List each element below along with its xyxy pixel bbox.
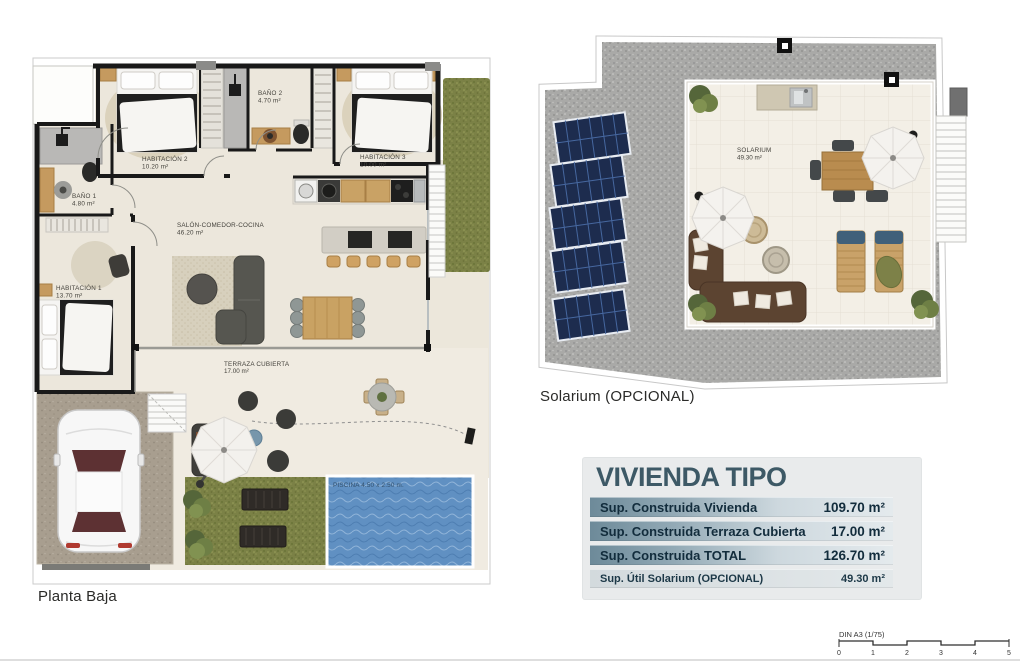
scale-label: DIN A3 (1/75) — [839, 630, 885, 639]
summary-title: VIVIENDA TIPO — [596, 462, 787, 493]
room-label-bano2: BAÑO 2 — [258, 88, 283, 97]
ottoman — [267, 450, 289, 472]
stove — [391, 180, 413, 202]
floor-plan-planta-baja: PISCINA 4.50 x 2.50 m. — [33, 58, 490, 584]
room-label-habitacion1: HABITACIÓN 1 — [56, 283, 102, 292]
sheet-bottom-edge — [0, 659, 1020, 661]
summary-row-label: Sup. Construida TOTAL — [600, 548, 746, 563]
summary-row-label: Sup. Construida Vivienda — [600, 500, 757, 515]
scale-ticks: 0 1 2 3 4 5 — [837, 650, 1011, 657]
summary-panel: VIVIENDA TIPO Sup. Construida Vivienda 1… — [583, 458, 921, 599]
room-area-bano1: 4.80 m² — [72, 201, 95, 208]
summary-row-label: Sup. Útil Solarium (OPCIONAL) — [600, 573, 763, 585]
sun-lounger — [240, 526, 286, 547]
summary-row-value: 17.00 m² — [831, 524, 885, 539]
ottoman — [238, 391, 258, 411]
closet — [313, 68, 333, 148]
dining-table — [291, 297, 365, 339]
summary-row: Sup. Construida TOTAL 126.70 m² — [590, 545, 893, 565]
bedroom-3 — [337, 68, 442, 157]
sun-lounger — [242, 489, 288, 510]
hedge — [443, 78, 490, 272]
room-area-terraza: 17.00 m² — [224, 368, 249, 375]
room-label-habitacion3: HABITACIÓN 3 — [360, 152, 406, 161]
car — [54, 410, 144, 552]
svg-text:4: 4 — [973, 650, 977, 657]
sink-counter — [414, 180, 425, 202]
room-label-habitacion2: HABITACIÓN 2 — [142, 154, 188, 163]
ottoman — [276, 409, 296, 429]
driveway-stairs — [148, 394, 186, 432]
coffee-table — [187, 274, 217, 304]
exterior-stairs — [429, 165, 445, 277]
summary-row: Sup. Construida Terraza Cubierta 17.00 m… — [590, 521, 893, 541]
solarium-plan: SOLARIUM 49.30 m² — [545, 38, 967, 383]
room-area-habitacion1: 13.70 m² — [56, 293, 82, 300]
summary-row-value: 49.30 m² — [841, 573, 885, 585]
summary-row-value: 109.70 m² — [823, 500, 885, 515]
room-label-salon: SALÓN-COMEDOR-COCINA — [177, 220, 265, 229]
room-label-solarium: SOLARIUM — [737, 147, 772, 154]
room-area-habitacion3: 10.00 m² — [360, 162, 386, 169]
pool: PISCINA 4.50 x 2.50 m. — [327, 476, 473, 567]
caption-planta-baja: Planta Baja — [38, 588, 117, 605]
svg-text:0: 0 — [837, 650, 841, 657]
kitchen-island — [322, 227, 426, 267]
solarium-terrace: SOLARIUM 49.30 m² — [687, 82, 939, 327]
svg-text:2: 2 — [905, 650, 909, 657]
caption-solarium: Solarium (OPCIONAL) — [540, 388, 695, 405]
outdoor-kitchenette — [757, 85, 817, 110]
summary-row-label: Sup. Construida Terraza Cubierta — [600, 524, 806, 539]
solar-panels — [549, 112, 630, 341]
summary-row-util: Sup. Útil Solarium (OPCIONAL) 49.30 m² — [590, 569, 893, 588]
room-area-habitacion2: 10.20 m² — [142, 164, 168, 171]
room-label-bano1: BAÑO 1 — [72, 191, 97, 200]
svg-text:5: 5 — [1007, 650, 1011, 657]
patio — [33, 66, 93, 124]
room-area-solarium: 49.30 m² — [737, 155, 762, 162]
pool-label: PISCINA 4.50 x 2.50 m. — [333, 482, 404, 489]
summary-row-value: 126.70 m² — [823, 548, 885, 563]
curb — [42, 564, 150, 570]
room-area-salon: 46.20 m² — [177, 230, 203, 237]
scale-bar: DIN A3 (1/75) 0 1 2 3 4 5 — [837, 630, 1011, 657]
svg-text:1: 1 — [871, 650, 875, 657]
room-area-bano2: 4.70 m² — [258, 98, 281, 105]
svg-text:3: 3 — [939, 650, 943, 657]
sheet: { "planta_baja": { "title": "Planta Baja… — [0, 0, 1020, 670]
wardrobe-block — [201, 68, 247, 148]
summary-row: Sup. Construida Vivienda 109.70 m² — [590, 497, 893, 517]
room-label-terraza: TERRAZA CUBIERTA — [224, 361, 290, 368]
